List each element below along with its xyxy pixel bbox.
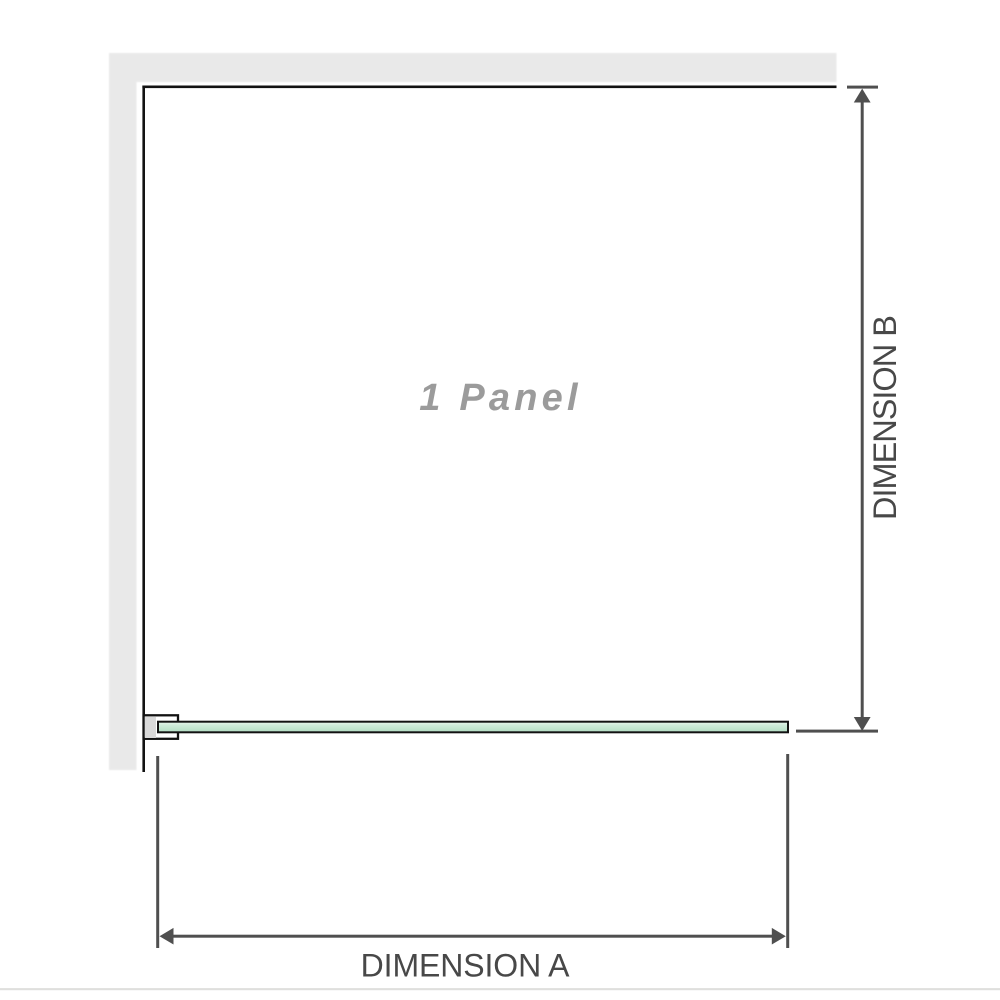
svg-text:1 Panel: 1 Panel: [419, 377, 581, 419]
svg-text:DIMENSION A: DIMENSION A: [361, 948, 570, 984]
svg-text:DIMENSION B: DIMENSION B: [867, 316, 903, 520]
